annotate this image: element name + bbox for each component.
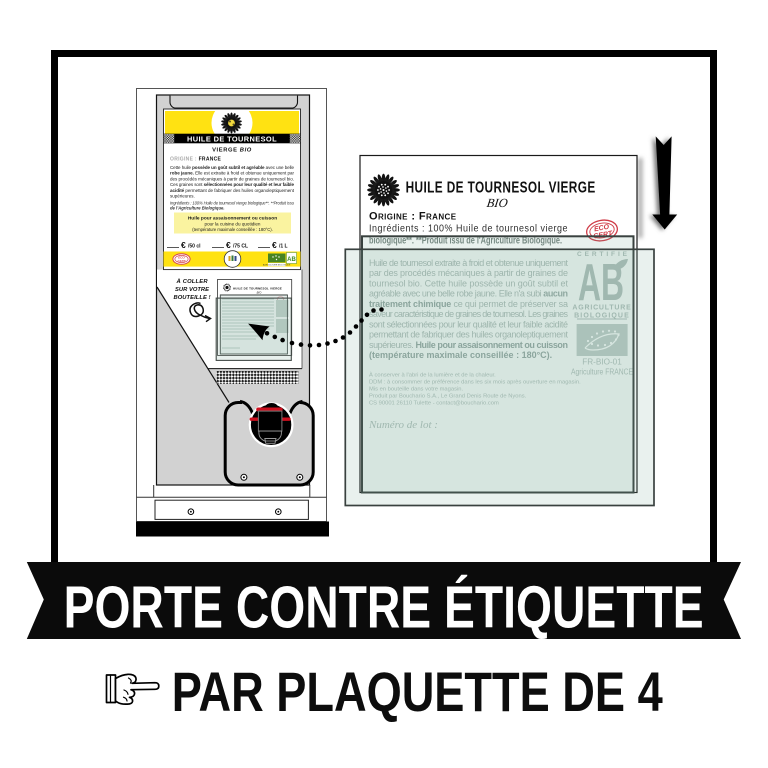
svg-text:BOUTEILLE !: BOUTEILLE ! xyxy=(174,295,211,301)
svg-text:/50 cl: /50 cl xyxy=(188,244,201,250)
svg-text:Origine : France: Origine : France xyxy=(369,210,457,222)
svg-text:des procédés mécaniques à part: des procédés mécaniques à partir de grai… xyxy=(170,176,294,181)
svg-text:BIO: BIO xyxy=(486,196,509,210)
svg-text:PORTE CONTRE ÉTIQUETTE: PORTE CONTRE ÉTIQUETTE xyxy=(64,575,704,641)
svg-text:€: € xyxy=(272,240,277,250)
svg-text:À COLLER: À COLLER xyxy=(176,278,209,285)
svg-text:/1 L: /1 L xyxy=(279,244,288,250)
svg-text:AGRICULTURE BIOLOGIQUE: AGRICULTURE BIOLOGIQUE xyxy=(263,264,291,267)
svg-text:/75 CL: /75 CL xyxy=(233,244,248,250)
svg-text:HUILE DE TOURNESOL VIERGE: HUILE DE TOURNESOL VIERGE xyxy=(233,286,282,290)
svg-text:acidité permettant de fabrique: acidité permettant de fabriquer des huil… xyxy=(170,188,295,193)
svg-text:ORIGINE : FRANCE: ORIGINE : FRANCE xyxy=(170,157,222,163)
svg-text:(température maximale conseill: (température maximale conseillée : 180°C… xyxy=(192,227,273,232)
svg-text:supérieures.: supérieures. xyxy=(170,194,195,199)
svg-text:HUILE DE TOURNESOL: HUILE DE TOURNESOL xyxy=(187,134,277,143)
svg-text:€: € xyxy=(226,240,231,250)
svg-text:AB: AB xyxy=(287,257,296,263)
svg-text:Cette huile possède un goût su: Cette huile possède un goût subtil et ag… xyxy=(170,165,294,170)
svg-text:€: € xyxy=(181,240,186,250)
svg-text:de l'Agriculture Biologique.: de l'Agriculture Biologique. xyxy=(170,206,225,211)
svg-text:Ces graines sont sélectionnées: Ces graines sont sélectionnées pour leur… xyxy=(170,182,294,187)
svg-text:VIERGE BIO: VIERGE BIO xyxy=(212,147,252,153)
svg-text:robe jaune. Elle est extraite: robe jaune. Elle est extraite à froid et… xyxy=(170,171,295,176)
svg-text:CERT: CERT xyxy=(177,259,186,263)
svg-text:SUR VOTRE: SUR VOTRE xyxy=(175,287,210,293)
svg-text:HUILE DE TOURNESOL VIERGE: HUILE DE TOURNESOL VIERGE xyxy=(406,180,596,197)
svg-text:PAR PLAQUETTE DE 4: PAR PLAQUETTE DE 4 xyxy=(172,660,663,723)
svg-text:pour la cuisine du quotidien: pour la cuisine du quotidien xyxy=(205,221,261,226)
svg-text:Ingrédients : 100% Huile de to: Ingrédients : 100% Huile de tournesol vi… xyxy=(369,223,568,234)
